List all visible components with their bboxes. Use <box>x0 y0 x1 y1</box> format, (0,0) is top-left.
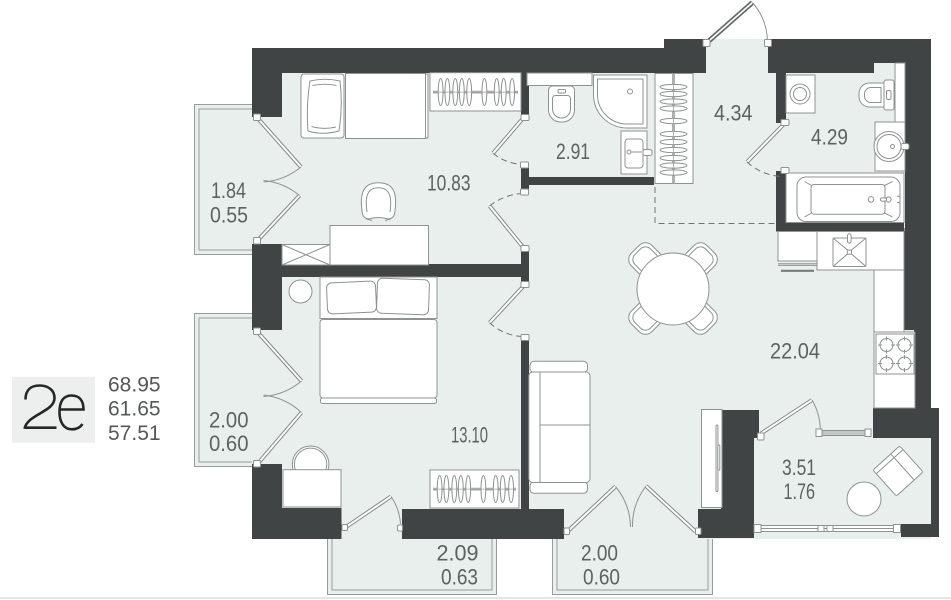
svg-text:22.04: 22.04 <box>770 339 820 364</box>
svg-text:0.55: 0.55 <box>210 203 248 228</box>
svg-text:4.34: 4.34 <box>714 101 753 126</box>
svg-text:0.60: 0.60 <box>209 431 249 456</box>
svg-text:2.00: 2.00 <box>209 408 249 433</box>
svg-text:13.10: 13.10 <box>451 423 488 448</box>
svg-text:0.60: 0.60 <box>583 565 620 590</box>
svg-text:1.76: 1.76 <box>784 479 816 504</box>
svg-text:2.09: 2.09 <box>437 541 479 566</box>
svg-text:4.29: 4.29 <box>811 125 848 150</box>
svg-text:57.51: 57.51 <box>108 422 161 445</box>
svg-text:1.84: 1.84 <box>211 178 246 203</box>
svg-text:2.00: 2.00 <box>581 541 618 566</box>
svg-text:0.63: 0.63 <box>441 565 478 590</box>
svg-text:68.95: 68.95 <box>108 374 161 397</box>
svg-text:61.65: 61.65 <box>108 398 161 421</box>
svg-text:2.91: 2.91 <box>556 139 590 164</box>
svg-text:10.83: 10.83 <box>427 171 471 196</box>
svg-text:3.51: 3.51 <box>782 455 816 480</box>
